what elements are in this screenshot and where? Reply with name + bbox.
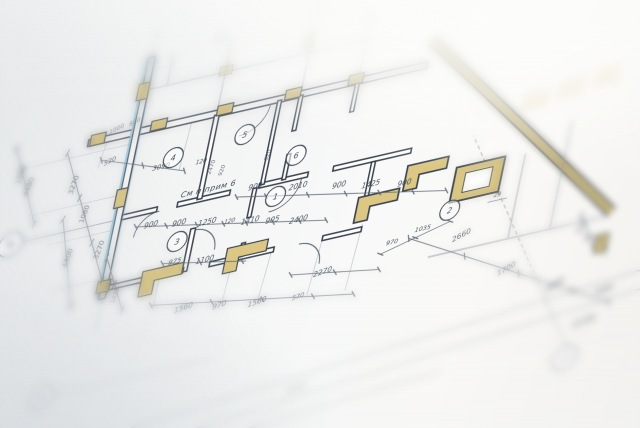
dimension-tick [377,251,385,256]
dimension-label: 970 [212,298,227,311]
upper-faint-walls [138,5,379,129]
dimension-label: 1080 [78,204,92,223]
dimension-label: 820 [264,149,274,161]
dimension-label: 3270 [66,175,81,195]
dimension-label: 7560 [594,282,613,298]
dimension-tick [120,306,124,314]
dimension-label: 1425 [361,178,382,191]
dimension-tick [32,220,36,228]
dimension-label: 2400 [288,213,309,226]
pilasters-layer [40,0,640,381]
dimension-label: 120 [223,217,236,226]
floor-plan-svg: 9002010900142590090090012501201410905240… [0,0,640,428]
dimension-label: 905 [265,214,281,226]
dimension-label: 1250 [197,215,218,228]
dimension-label: 520 [104,155,117,168]
dimension-chain-line [0,283,640,428]
dimension-tick [15,144,19,152]
dimension-label: 29 [493,191,502,200]
right-faint-windows [521,63,622,111]
dimension-label: 6430 [287,380,306,396]
dimension-label: 900 [143,219,159,231]
axis-lines [0,0,640,428]
dimension-label: 1700 [496,259,516,277]
dimension-chain-line [0,371,441,428]
axis-bubble [215,31,228,44]
room-tag-divider [488,198,507,203]
walls-layer [53,0,444,310]
dimension-label: 900 [171,217,187,229]
dimension-label: 1560 [247,294,267,309]
dimension-label: 920 [218,164,228,176]
dimension-label: 1035 [414,223,432,235]
axis-bubble [311,3,325,17]
dimension-labels-layer: 9002010900142590090090012501201410905240… [0,0,640,428]
dimension-label: 570 [292,291,305,303]
dimension-label: 25780 [572,312,596,330]
dimension-label: 4400 [60,248,75,268]
dimension-label: 25 [582,234,592,243]
dimension-label: 4480 [21,177,36,197]
dimension-tick [78,194,82,202]
axis-bubbles-layer: ВБ1 [0,0,640,428]
dimension-label: 970 [385,237,399,248]
dimension-label: 2660 [545,275,566,294]
dimension-label: 1560 [174,300,194,315]
dimension-tick [65,149,69,157]
dimension-chains-layer [0,0,640,428]
blueprint-photo: 9002010900142590090090012501201410905240… [0,0,640,428]
dimension-label: 2660 [452,226,472,244]
dimension-tick [90,239,94,247]
dimension-label: 1410 [240,214,261,227]
dimension-label: 900 [331,179,347,191]
dimension-label: 2270 [313,264,333,279]
